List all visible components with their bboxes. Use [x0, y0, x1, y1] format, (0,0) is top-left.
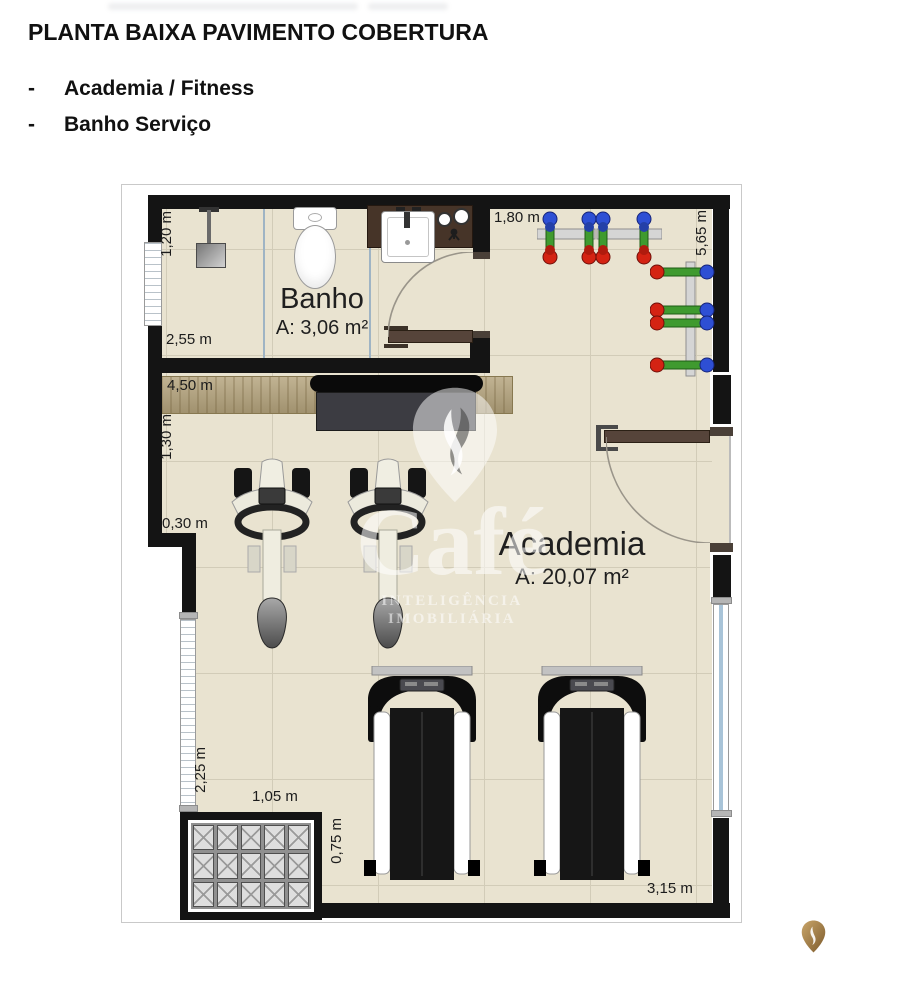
- wall-bathroom-right-upper: [473, 209, 490, 252]
- dim-1-80: 1,80 m: [494, 210, 540, 226]
- window-sill: [711, 597, 732, 604]
- page-title: PLANTA BAIXA PAVIMENTO COBERTURA: [28, 20, 488, 45]
- dumbbell-rack-right: [650, 258, 715, 380]
- bullet-dash: -: [28, 77, 35, 100]
- exercise-bike-icon: [338, 458, 438, 658]
- skylight-cell: [217, 825, 238, 850]
- window-sill: [179, 805, 198, 812]
- skylight-cell: [264, 825, 285, 850]
- skylight-cell: [241, 825, 262, 850]
- treadmill-icon: [362, 666, 482, 886]
- dumbbell-icon: [650, 265, 714, 279]
- bullet-academia-fitness: Academia / Fitness: [64, 77, 254, 100]
- faucet-spout-icon: [404, 212, 410, 228]
- dim-5-65: 5,65 m: [694, 210, 710, 256]
- wall-bathroom-bottom: [148, 358, 490, 373]
- dumbbell-icon: [650, 303, 714, 317]
- wall-step: [148, 533, 196, 547]
- outside-area: [122, 547, 182, 920]
- equipment-lid: [310, 375, 483, 392]
- wall-left-pillar: [182, 547, 196, 614]
- valve-icon: [453, 208, 470, 225]
- tv-panel: [316, 392, 476, 431]
- valve-icon: [437, 212, 452, 227]
- skylight-grid: [193, 825, 309, 907]
- skylight-cell: [193, 882, 214, 907]
- skylight-shaft: [180, 812, 322, 920]
- skylight-cell: [217, 882, 238, 907]
- room-area-banho: A: 3,06 m²: [247, 317, 397, 340]
- skylight-cell: [288, 825, 309, 850]
- dim-0-30: 0,30 m: [162, 516, 208, 532]
- skylight-cell: [193, 853, 214, 878]
- door-jamb: [710, 427, 733, 436]
- skylight-cell: [264, 853, 285, 878]
- faint-smudge: [368, 3, 448, 10]
- treadmill-icon: [532, 666, 652, 886]
- dim-4-50: 4,50 m: [167, 378, 213, 394]
- room-label-banho: Banho: [247, 283, 397, 316]
- wall-right-upper: [713, 209, 729, 372]
- wall-bottom: [322, 903, 730, 918]
- dim-2-55: 2,55 m: [166, 332, 212, 348]
- skylight-cell: [288, 853, 309, 878]
- dim-1-30: 1,30 m: [159, 414, 175, 460]
- faint-smudge: [108, 3, 358, 10]
- dim-0-75: 0,75 m: [329, 818, 345, 864]
- toilet-bowl-icon: [294, 225, 336, 289]
- window-sill: [179, 612, 198, 619]
- dumbbell-rack-top: [537, 210, 662, 266]
- door-jamb: [473, 331, 490, 338]
- dim-3-15: 3,15 m: [647, 881, 693, 897]
- mixer-symbol-icon: [446, 227, 462, 241]
- skylight-cell: [193, 825, 214, 850]
- room-label-academia: Academia: [477, 525, 667, 563]
- exercise-bike-icon: [222, 458, 322, 658]
- brand-pin-icon: [801, 920, 826, 953]
- dumbbell-icon: [650, 316, 714, 330]
- door-stop-mark: [596, 425, 618, 429]
- window-sill: [711, 810, 732, 817]
- bullet-banho-servico: Banho Serviço: [64, 113, 211, 136]
- skylight-cell: [288, 882, 309, 907]
- dim-1-05: 1,05 m: [252, 789, 298, 805]
- window-right: [713, 604, 729, 812]
- shower-pipe-icon: [207, 210, 211, 246]
- skylight-cell: [264, 882, 285, 907]
- door-hinge-mark: [384, 344, 408, 348]
- skylight-cell: [241, 882, 262, 907]
- skylight-cell: [217, 853, 238, 878]
- shower-pan-icon: [196, 243, 226, 268]
- skylight-cell: [241, 853, 262, 878]
- bullet-dash: -: [28, 113, 35, 136]
- dumbbell-icon: [650, 358, 714, 372]
- pillar-right-b: [710, 552, 734, 602]
- door-jamb: [710, 543, 733, 552]
- dim-2-25: 2,25 m: [193, 747, 209, 793]
- floor-plan-page: PLANTA BAIXA PAVIMENTO COBERTURA - Acade…: [0, 0, 904, 1000]
- doorway-floor-patch: [712, 436, 731, 543]
- room-area-academia: A: 20,07 m²: [477, 564, 667, 590]
- pillar-right-a: [710, 372, 734, 427]
- door-jamb: [473, 252, 490, 259]
- drain-icon: [405, 240, 410, 245]
- toilet-flush-button: [308, 213, 322, 222]
- dim-1-20: 1,20 m: [159, 211, 175, 257]
- bathroom-door-swing-arc: [388, 252, 473, 337]
